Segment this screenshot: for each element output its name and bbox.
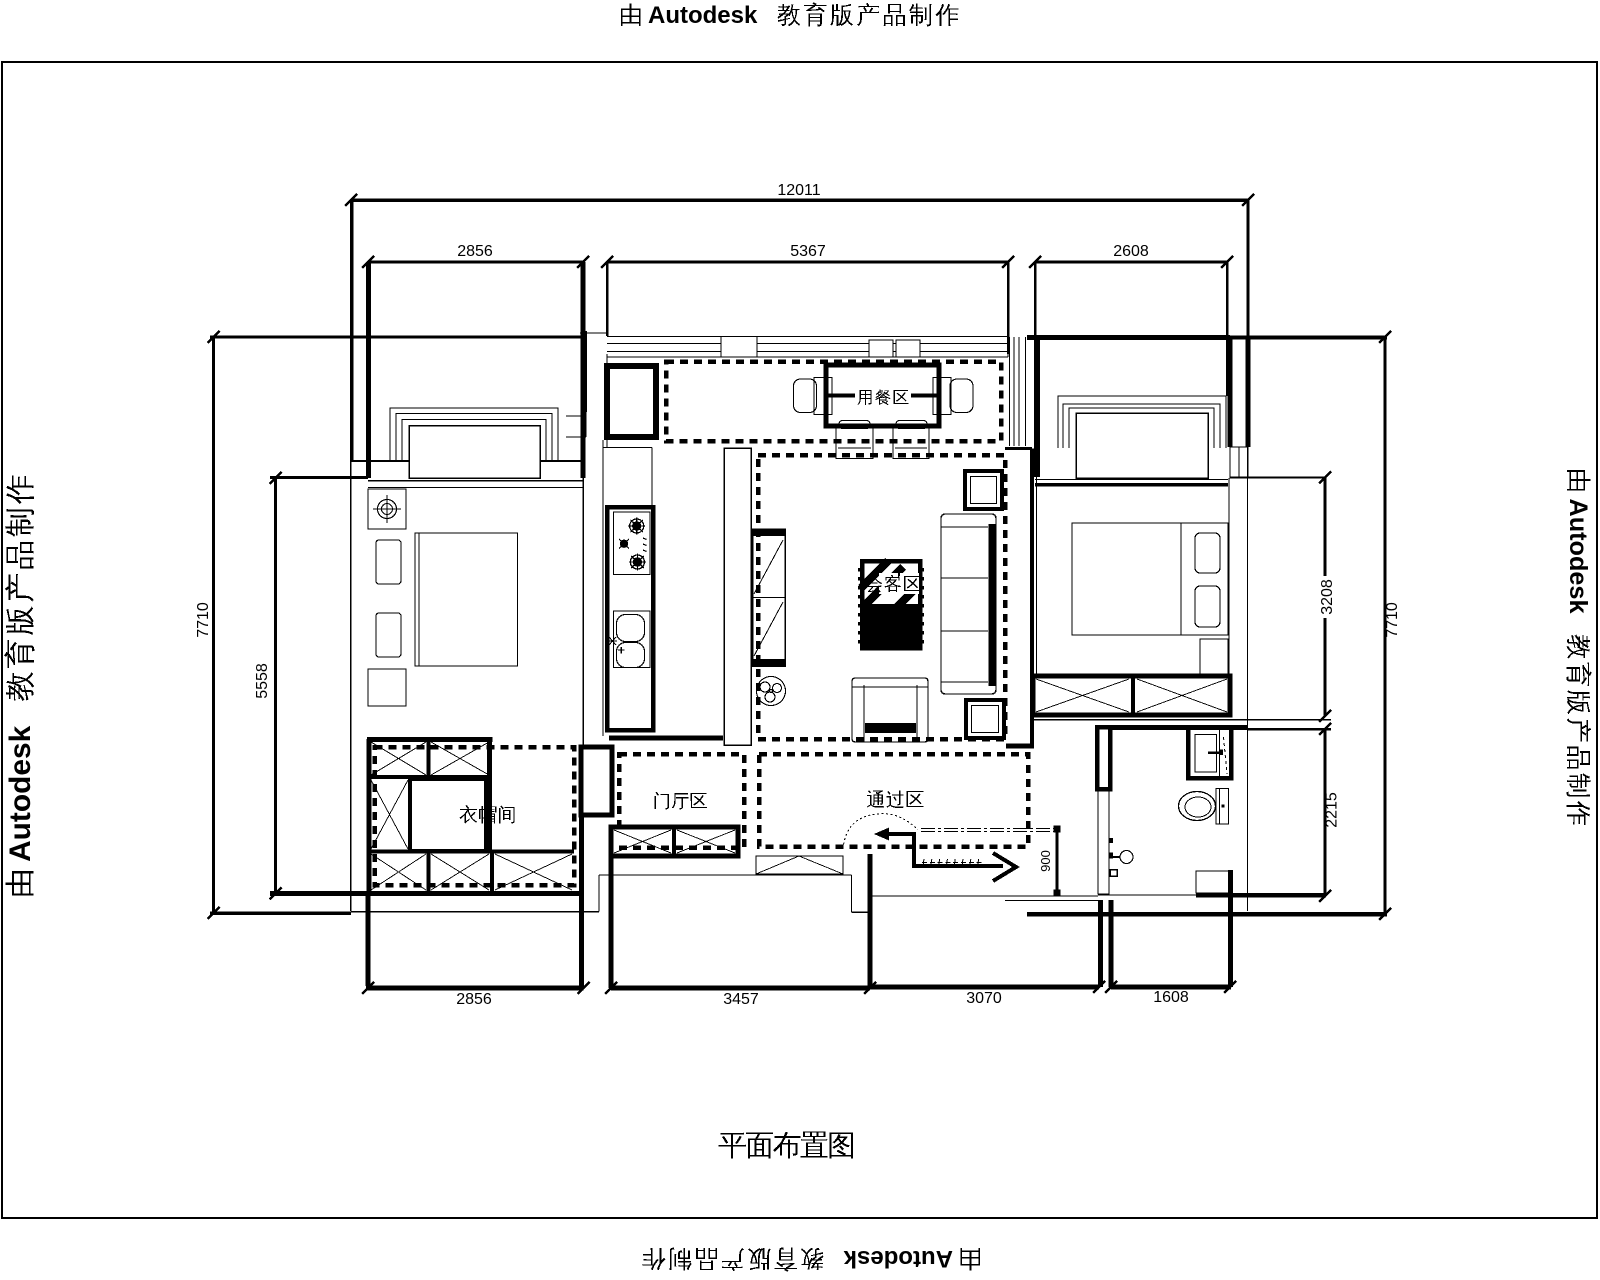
svg-text:5558: 5558 <box>254 663 271 699</box>
svg-text:3070: 3070 <box>966 990 1002 1007</box>
svg-text:2215: 2215 <box>1324 792 1341 828</box>
svg-text:2856: 2856 <box>456 991 492 1008</box>
svg-text:3208: 3208 <box>1319 579 1336 615</box>
svg-text:12011: 12011 <box>777 182 820 199</box>
svg-text:5367: 5367 <box>790 243 826 260</box>
svg-text:2856: 2856 <box>457 243 493 260</box>
svg-text:3457: 3457 <box>723 991 759 1008</box>
svg-text:7710: 7710 <box>195 602 212 638</box>
svg-text:7710: 7710 <box>1384 602 1401 638</box>
svg-text:1608: 1608 <box>1153 989 1189 1006</box>
svg-text:2608: 2608 <box>1113 243 1149 260</box>
svg-text:900: 900 <box>1038 850 1053 872</box>
